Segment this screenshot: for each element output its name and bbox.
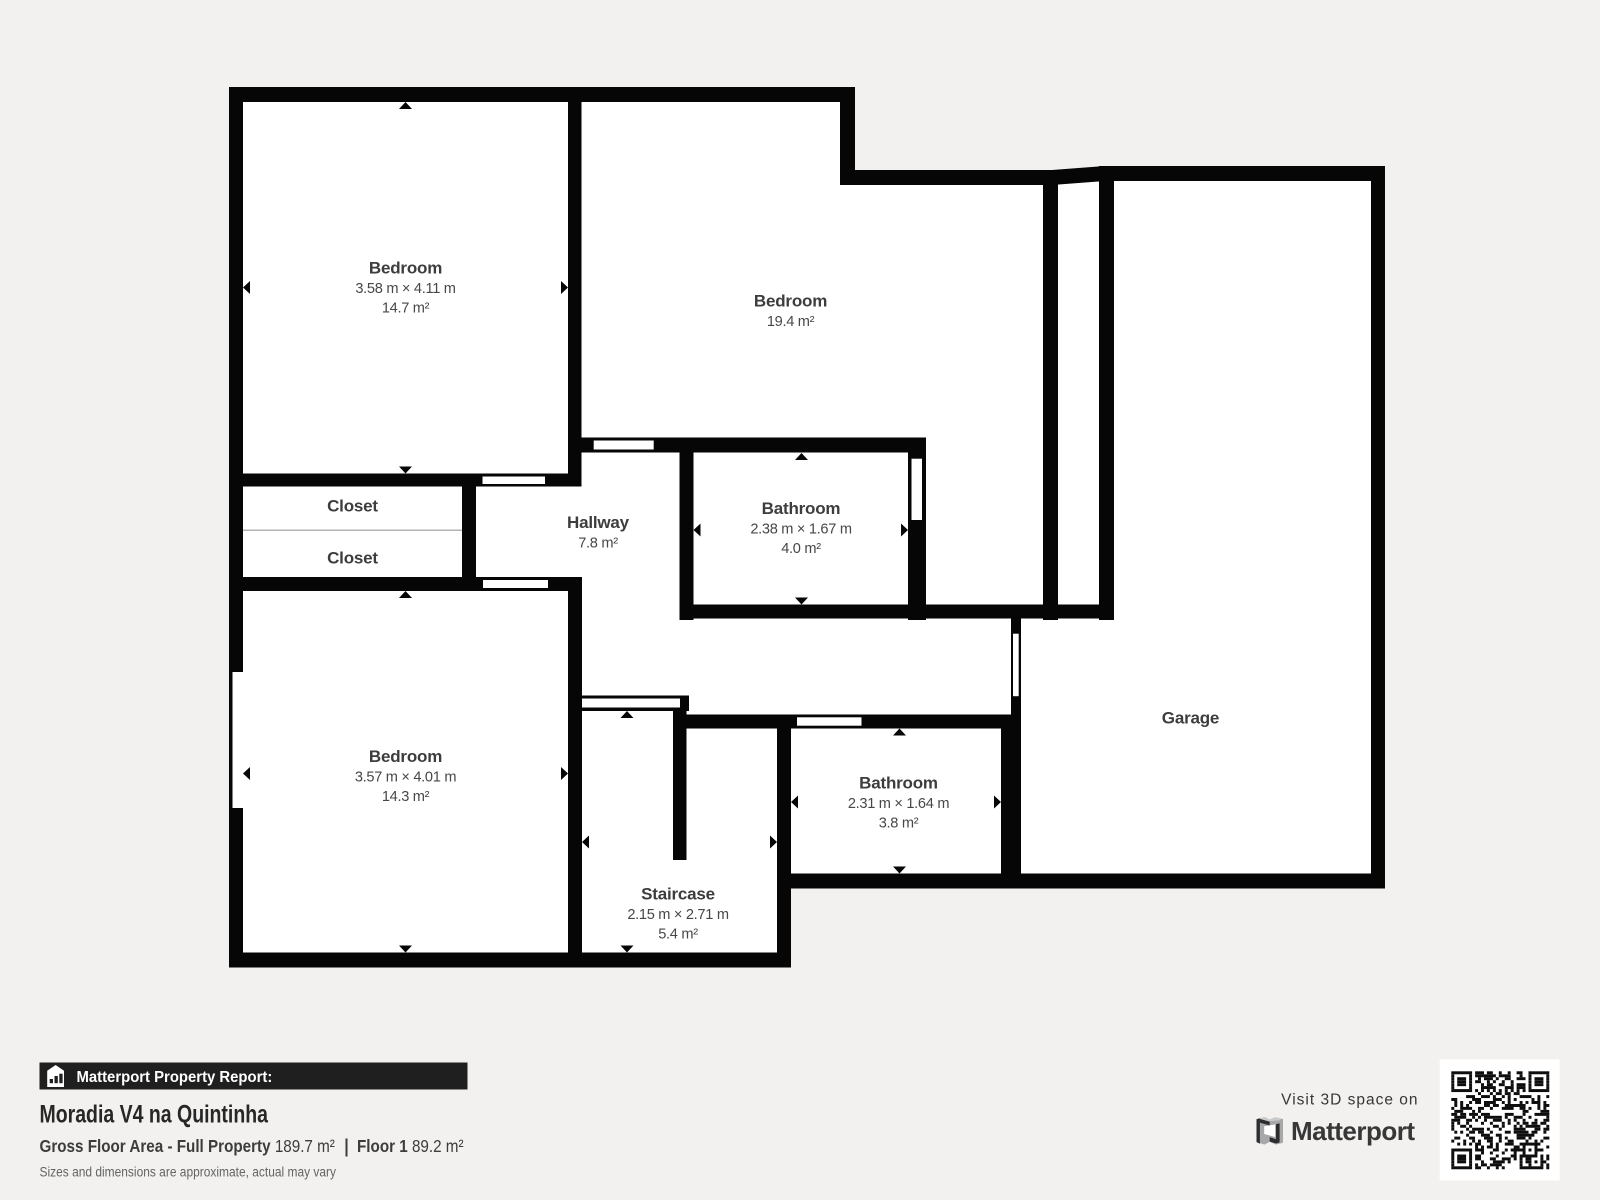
- svg-text:14.3 m²: 14.3 m²: [382, 789, 430, 805]
- svg-text:Bedroom: Bedroom: [369, 747, 442, 766]
- svg-text:Bedroom: Bedroom: [369, 259, 442, 278]
- svg-text:3.58 m × 4.11 m: 3.58 m × 4.11 m: [355, 281, 455, 297]
- svg-text:Sizes and dimensions are appro: Sizes and dimensions are approximate, ac…: [40, 1164, 337, 1180]
- svg-text:Closet: Closet: [327, 497, 378, 516]
- svg-text:3.8 m²: 3.8 m²: [879, 816, 919, 832]
- svg-text:7.8 m²: 7.8 m²: [578, 536, 618, 552]
- svg-text:Moradia V4 na Quintinha: Moradia V4 na Quintinha: [40, 1100, 269, 1128]
- svg-text:Matterport: Matterport: [1291, 1116, 1415, 1146]
- svg-text:3.57 m × 4.01 m: 3.57 m × 4.01 m: [355, 770, 457, 786]
- svg-text:Bathroom: Bathroom: [762, 499, 841, 518]
- svg-text:Hallway: Hallway: [567, 513, 630, 532]
- svg-text:Garage: Garage: [1162, 709, 1219, 728]
- svg-text:Bathroom: Bathroom: [859, 774, 938, 793]
- svg-text:2.38 m × 1.67 m: 2.38 m × 1.67 m: [750, 522, 852, 538]
- svg-text:19.4 m²: 19.4 m²: [767, 314, 815, 330]
- svg-text:Visit 3D space on: Visit 3D space on: [1281, 1092, 1418, 1109]
- svg-text:Bedroom: Bedroom: [754, 292, 827, 311]
- svg-text:Gross Floor Area - Full Proper: Gross Floor Area - Full Property 189.7 m…: [40, 1137, 336, 1156]
- svg-text:5.4 m²: 5.4 m²: [658, 927, 698, 943]
- svg-text:Floor 1 89.2 m²: Floor 1 89.2 m²: [357, 1137, 464, 1156]
- svg-text:Matterport Property Report:: Matterport Property Report:: [77, 1069, 273, 1087]
- svg-text:14.7 m²: 14.7 m²: [382, 301, 430, 317]
- svg-text:2.15 m × 2.71 m: 2.15 m × 2.71 m: [627, 907, 729, 923]
- svg-text:Closet: Closet: [327, 549, 378, 568]
- svg-text:4.0 m²: 4.0 m²: [781, 541, 821, 557]
- svg-text:Staircase: Staircase: [641, 885, 715, 904]
- svg-text:2.31 m × 1.64 m: 2.31 m × 1.64 m: [848, 796, 950, 812]
